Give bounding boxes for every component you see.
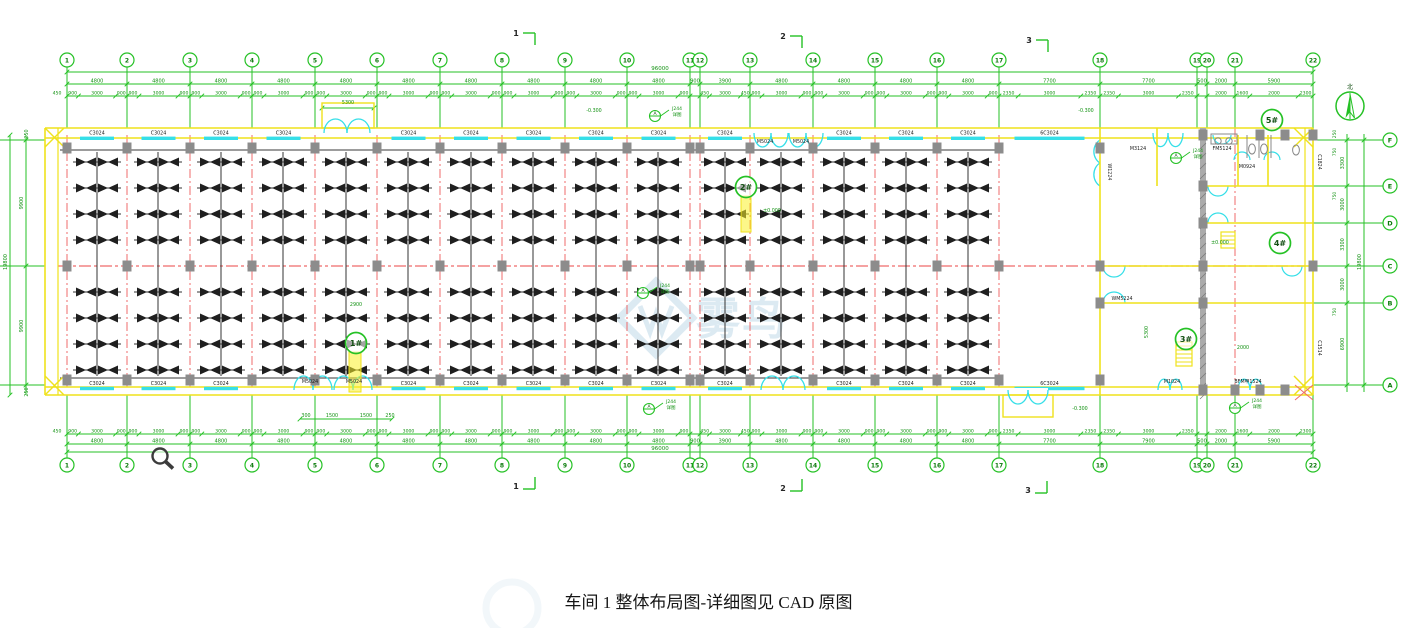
svg-text:BFM甲1524: BFM甲1524 (1234, 379, 1261, 385)
svg-text:750: 750 (1332, 192, 1338, 201)
dimensions-bottom: 9600048009003000900480090030009004800900… (53, 106, 1316, 455)
svg-text:J244: J244 (659, 283, 670, 289)
svg-text:详图: 详图 (661, 288, 670, 295)
svg-text:3000: 3000 (1143, 429, 1155, 435)
svg-text:C3024: C3024 (717, 131, 733, 137)
svg-text:900: 900 (555, 91, 564, 97)
svg-text:4800: 4800 (91, 79, 104, 85)
svg-text:3000: 3000 (719, 429, 731, 435)
svg-text:-0.300: -0.300 (1078, 108, 1093, 114)
svg-text:900: 900 (379, 429, 388, 435)
svg-text:3000: 3000 (838, 91, 850, 97)
svg-text:900: 900 (752, 91, 761, 97)
svg-text:2350: 2350 (1085, 91, 1097, 97)
axis-grid (0, 67, 1313, 458)
svg-text:20: 20 (1203, 57, 1211, 64)
svg-text:14: 14 (809, 57, 817, 64)
svg-text:4800: 4800 (152, 439, 165, 445)
svg-text:7: 7 (438, 57, 442, 64)
svg-text:1#: 1# (350, 339, 363, 348)
svg-text:2#: 2# (740, 183, 753, 192)
svg-text:3000: 3000 (278, 91, 290, 97)
svg-text:16: 16 (933, 462, 941, 469)
svg-text:19800: 19800 (3, 254, 9, 270)
svg-text:16: 16 (933, 57, 941, 64)
svg-text:10: 10 (623, 57, 631, 64)
floorplan-drawing: 雾鸟FEDCBA33003000330030006900198002507507… (0, 0, 1417, 628)
svg-text:900: 900 (504, 429, 513, 435)
svg-text:2350: 2350 (1182, 429, 1194, 435)
svg-text:2900: 2900 (350, 302, 362, 308)
svg-text:450: 450 (700, 429, 709, 435)
svg-text:1600: 1600 (1237, 429, 1249, 435)
svg-text:900: 900 (492, 429, 501, 435)
svg-text:3000: 3000 (153, 429, 165, 435)
svg-text:15: 15 (871, 462, 879, 469)
svg-text:1500: 1500 (360, 413, 372, 419)
svg-text:M5024: M5024 (793, 139, 809, 145)
svg-text:3000: 3000 (1044, 429, 1056, 435)
svg-text:WM5224: WM5224 (1111, 296, 1132, 302)
svg-text:详图: 详图 (673, 111, 682, 118)
svg-text:1: 1 (65, 57, 69, 64)
svg-text:4800: 4800 (652, 79, 665, 85)
svg-text:E: E (1388, 182, 1392, 190)
svg-text:9: 9 (563, 57, 567, 64)
svg-text:900: 900 (876, 429, 885, 435)
svg-text:900: 900 (305, 91, 314, 97)
svg-text:900: 900 (617, 429, 626, 435)
svg-text:900: 900 (191, 429, 200, 435)
svg-text:17: 17 (995, 462, 1003, 469)
svg-text:5#: 5# (1266, 116, 1279, 125)
svg-text:3000: 3000 (962, 429, 974, 435)
svg-text:900: 900 (430, 91, 439, 97)
svg-text:3900: 3900 (719, 439, 732, 445)
svg-text:2000: 2000 (1268, 429, 1280, 435)
svg-text:900: 900 (367, 91, 376, 97)
svg-text:18: 18 (1096, 462, 1104, 469)
svg-text:900: 900 (803, 91, 812, 97)
svg-text:C3024: C3024 (651, 131, 667, 137)
svg-text:5: 5 (313, 462, 317, 469)
svg-text:C3024: C3024 (463, 381, 479, 387)
svg-text:900: 900 (430, 429, 439, 435)
svg-text:21: 21 (1231, 57, 1239, 64)
svg-text:900: 900 (117, 429, 126, 435)
svg-text:900: 900 (191, 91, 200, 97)
svg-text:900: 900 (865, 91, 874, 97)
svg-text:4800: 4800 (838, 439, 851, 445)
svg-text:4800: 4800 (340, 439, 353, 445)
svg-text:250: 250 (24, 129, 30, 138)
svg-text:4800: 4800 (962, 439, 975, 445)
svg-text:2000: 2000 (1215, 79, 1228, 85)
svg-text:4800: 4800 (152, 79, 165, 85)
svg-text:250: 250 (1332, 130, 1338, 139)
svg-text:2000: 2000 (1215, 439, 1228, 445)
svg-text:3000: 3000 (776, 91, 788, 97)
svg-text:20: 20 (1203, 462, 1211, 469)
svg-text:M3124: M3124 (1130, 146, 1146, 152)
svg-text:3000: 3000 (215, 91, 227, 97)
svg-text:900: 900 (379, 91, 388, 97)
svg-text:900: 900 (180, 91, 189, 97)
svg-text:C3024: C3024 (151, 381, 167, 387)
svg-text:FM5124: FM5124 (1212, 146, 1231, 152)
svg-text:4800: 4800 (215, 79, 228, 85)
north-arrow-icon: 北 (1336, 83, 1364, 120)
svg-text:900: 900 (938, 91, 947, 97)
svg-text:C3024: C3024 (401, 381, 417, 387)
svg-text:2000: 2000 (1237, 345, 1249, 351)
svg-text:21: 21 (1231, 462, 1239, 469)
svg-text:2350: 2350 (1003, 91, 1015, 97)
svg-text:3000: 3000 (653, 91, 665, 97)
svg-text:2350: 2350 (1085, 429, 1097, 435)
svg-text:900: 900 (690, 79, 700, 85)
svg-text:18: 18 (1096, 57, 1104, 64)
svg-text:C3024: C3024 (588, 131, 604, 137)
svg-text:450: 450 (53, 91, 62, 97)
svg-text:C3024: C3024 (960, 381, 976, 387)
svg-text:9900: 9900 (19, 320, 25, 333)
svg-text:C3024: C3024 (401, 131, 417, 137)
svg-text:750: 750 (1332, 148, 1338, 157)
machine-rows (73, 152, 992, 376)
svg-text:W1224: W1224 (1106, 164, 1112, 181)
svg-text:900: 900 (566, 429, 575, 435)
svg-text:3000: 3000 (91, 429, 103, 435)
svg-text:-0.300: -0.300 (1072, 406, 1087, 412)
svg-text:900: 900 (68, 429, 77, 435)
svg-text:900: 900 (555, 429, 564, 435)
svg-text:1600: 1600 (1237, 91, 1249, 97)
svg-text:4800: 4800 (340, 79, 353, 85)
svg-text:C3024: C3024 (588, 381, 604, 387)
svg-text:900: 900 (989, 91, 998, 97)
svg-text:C3024: C3024 (463, 131, 479, 137)
svg-text:2350: 2350 (1182, 91, 1194, 97)
svg-text:4800: 4800 (775, 439, 788, 445)
svg-text:1: 1 (65, 462, 69, 469)
svg-text:4800: 4800 (277, 79, 290, 85)
svg-text:3300: 3300 (1340, 157, 1346, 170)
svg-text:900: 900 (989, 429, 998, 435)
svg-text:4800: 4800 (527, 79, 540, 85)
svg-text:4800: 4800 (465, 79, 478, 85)
svg-text:C3024: C3024 (213, 381, 229, 387)
svg-text:13: 13 (746, 57, 754, 64)
svg-text:3: 3 (188, 57, 192, 64)
svg-text:2300: 2300 (1300, 91, 1312, 97)
svg-text:3000: 3000 (153, 91, 165, 97)
svg-text:3: 3 (1025, 486, 1031, 495)
svg-text:3000: 3000 (528, 91, 540, 97)
svg-text:3000: 3000 (653, 429, 665, 435)
svg-text:4800: 4800 (590, 439, 603, 445)
drawing-caption: 车间 1 整体布局图-详细图见 CAD 原图 (0, 588, 1417, 613)
svg-text:4800: 4800 (652, 439, 665, 445)
svg-text:6C3024: 6C3024 (1040, 381, 1059, 387)
svg-text:14: 14 (809, 462, 817, 469)
svg-text:3000: 3000 (91, 91, 103, 97)
svg-text:3000: 3000 (1143, 91, 1155, 97)
svg-text:C3024: C3024 (151, 131, 167, 137)
svg-text:12: 12 (696, 462, 704, 469)
svg-text:F: F (1388, 136, 1392, 144)
svg-text:900: 900 (690, 439, 700, 445)
svg-text:3000: 3000 (838, 429, 850, 435)
svg-text:3000: 3000 (465, 91, 477, 97)
svg-text:900: 900 (865, 429, 874, 435)
svg-text:4#: 4# (1274, 239, 1287, 248)
svg-text:3#: 3# (1180, 335, 1193, 344)
svg-text:J244: J244 (1251, 398, 1262, 404)
svg-text:3000: 3000 (528, 429, 540, 435)
svg-text:C3024: C3024 (276, 131, 292, 137)
svg-text:900: 900 (254, 429, 263, 435)
svg-text:C3024: C3024 (89, 131, 105, 137)
svg-text:900: 900 (814, 429, 823, 435)
svg-text:900: 900 (927, 91, 936, 97)
svg-text:2000: 2000 (1215, 429, 1227, 435)
svg-text:17: 17 (995, 57, 1003, 64)
svg-text:900: 900 (254, 91, 263, 97)
svg-text:900: 900 (242, 91, 251, 97)
svg-text:3000: 3000 (278, 429, 290, 435)
svg-text:详图: 详图 (667, 404, 676, 411)
svg-text:900: 900 (180, 429, 189, 435)
svg-text:C3024: C3024 (836, 131, 852, 137)
svg-text:J244: J244 (671, 106, 682, 112)
svg-text:1500: 1500 (326, 413, 338, 419)
svg-text:8: 8 (500, 57, 504, 64)
svg-text:2: 2 (780, 484, 786, 493)
building-walls (45, 128, 1313, 400)
svg-text:13: 13 (746, 462, 754, 469)
svg-text:2350: 2350 (1103, 91, 1115, 97)
svg-text:250: 250 (385, 413, 394, 419)
svg-text:15: 15 (871, 57, 879, 64)
svg-text:900: 900 (441, 429, 450, 435)
windows: C3024C3024C3024C3024C3024C3024C3024C3024… (80, 131, 1085, 391)
svg-text:北: 北 (1347, 83, 1353, 91)
svg-text:3: 3 (1026, 36, 1032, 45)
svg-text:2350: 2350 (1103, 429, 1115, 435)
svg-text:7700: 7700 (1043, 79, 1056, 85)
svg-text:3000: 3000 (776, 429, 788, 435)
svg-text:详图: 详图 (1253, 403, 1262, 410)
svg-text:500: 500 (1197, 439, 1207, 445)
svg-text:C1824: C1824 (1316, 154, 1322, 170)
svg-text:3000: 3000 (962, 91, 974, 97)
svg-text:900: 900 (242, 429, 251, 435)
svg-text:7700: 7700 (1043, 439, 1056, 445)
green-annotations: -0.300-0.300-0.300±0.000±0.0005300290030… (24, 100, 1249, 419)
svg-text:C3024: C3024 (960, 131, 976, 137)
svg-text:900: 900 (129, 91, 138, 97)
svg-text:900: 900 (629, 91, 638, 97)
svg-text:5300: 5300 (1144, 326, 1150, 338)
svg-text:3000: 3000 (590, 91, 602, 97)
svg-text:6900: 6900 (1340, 338, 1346, 351)
svg-text:4800: 4800 (900, 79, 913, 85)
svg-text:3900: 3900 (719, 79, 732, 85)
svg-text:900: 900 (566, 91, 575, 97)
svg-text:2300: 2300 (1300, 429, 1312, 435)
svg-text:9: 9 (563, 462, 567, 469)
svg-text:750: 750 (1332, 308, 1338, 317)
svg-text:900: 900 (68, 91, 77, 97)
svg-text:4800: 4800 (962, 79, 975, 85)
svg-text:C3024: C3024 (898, 131, 914, 137)
svg-text:900: 900 (367, 429, 376, 435)
svg-text:900: 900 (492, 91, 501, 97)
svg-text:4800: 4800 (900, 439, 913, 445)
svg-text:10: 10 (623, 462, 631, 469)
svg-text:5300: 5300 (342, 100, 354, 106)
svg-text:900: 900 (814, 91, 823, 97)
svg-text:900: 900 (129, 429, 138, 435)
svg-text:C3024: C3024 (717, 381, 733, 387)
svg-text:900: 900 (938, 429, 947, 435)
svg-text:2: 2 (125, 57, 129, 64)
svg-text:C3024: C3024 (526, 381, 542, 387)
svg-text:5900: 5900 (1268, 79, 1281, 85)
svg-text:C3024: C3024 (836, 381, 852, 387)
svg-text:D: D (1387, 219, 1393, 227)
svg-text:3000: 3000 (1340, 198, 1346, 211)
svg-text:4800: 4800 (91, 439, 104, 445)
svg-text:900: 900 (927, 429, 936, 435)
svg-text:M5024: M5024 (346, 379, 362, 385)
svg-text:4: 4 (250, 462, 254, 469)
svg-text:M0924: M0924 (1239, 164, 1255, 170)
svg-text:2: 2 (780, 32, 786, 41)
svg-text:M5024: M5024 (302, 379, 318, 385)
svg-text:M5024: M5024 (757, 139, 773, 145)
svg-text:22: 22 (1309, 462, 1317, 469)
dimensions-top: 9600048009003000900480090030009004800900… (53, 66, 1316, 98)
svg-text:3000: 3000 (215, 429, 227, 435)
svg-text:M1024: M1024 (1164, 379, 1180, 385)
svg-text:3: 3 (188, 462, 192, 469)
svg-text:3000: 3000 (403, 91, 415, 97)
svg-text:2000: 2000 (1215, 91, 1227, 97)
svg-text:450: 450 (53, 429, 62, 435)
svg-text:900: 900 (305, 429, 314, 435)
svg-text:7700: 7700 (1142, 79, 1155, 85)
svg-text:4800: 4800 (215, 439, 228, 445)
svg-text:3000: 3000 (590, 429, 602, 435)
svg-text:900: 900 (117, 91, 126, 97)
svg-text:C3024: C3024 (898, 381, 914, 387)
svg-text:96000: 96000 (651, 66, 669, 72)
svg-text:4800: 4800 (277, 439, 290, 445)
svg-text:22: 22 (1309, 57, 1317, 64)
svg-text:250: 250 (24, 387, 30, 396)
svg-text:详图: 详图 (1194, 153, 1203, 160)
svg-text:C3024: C3024 (651, 381, 667, 387)
svg-text:±0.000: ±0.000 (1211, 240, 1229, 246)
svg-text:1: 1 (513, 29, 519, 38)
svg-text:19800: 19800 (1357, 254, 1363, 270)
svg-text:900: 900 (316, 91, 325, 97)
svg-text:2: 2 (125, 462, 129, 469)
svg-text:3300: 3300 (1340, 238, 1346, 251)
svg-text:4800: 4800 (527, 439, 540, 445)
svg-text:±0.000: ±0.000 (763, 208, 781, 214)
svg-text:7: 7 (438, 462, 442, 469)
svg-text:4800: 4800 (465, 439, 478, 445)
svg-text:900: 900 (316, 429, 325, 435)
svg-text:4: 4 (250, 57, 254, 64)
svg-text:3000: 3000 (1340, 278, 1346, 291)
svg-text:900: 900 (504, 91, 513, 97)
svg-text:4800: 4800 (838, 79, 851, 85)
svg-text:6: 6 (375, 462, 379, 469)
svg-text:3000: 3000 (340, 429, 352, 435)
svg-text:6C3024: 6C3024 (1040, 131, 1059, 137)
svg-text:3000: 3000 (900, 91, 912, 97)
svg-text:J244: J244 (665, 399, 676, 405)
svg-text:900: 900 (752, 429, 761, 435)
svg-text:3000: 3000 (1044, 91, 1056, 97)
svg-text:900: 900 (617, 91, 626, 97)
svg-text:4800: 4800 (402, 79, 415, 85)
cad-viewport[interactable]: 雾鸟FEDCBA33003000330030006900198002507507… (0, 0, 1417, 628)
svg-text:C1514: C1514 (1316, 340, 1322, 356)
svg-text:900: 900 (680, 429, 689, 435)
svg-text:900: 900 (629, 429, 638, 435)
svg-text:C3024: C3024 (89, 381, 105, 387)
svg-text:900: 900 (680, 91, 689, 97)
svg-text:-0.300: -0.300 (586, 108, 601, 114)
svg-text:8: 8 (500, 462, 504, 469)
svg-text:5: 5 (313, 57, 317, 64)
svg-text:4800: 4800 (590, 79, 603, 85)
svg-text:96000: 96000 (651, 446, 669, 452)
svg-text:C: C (1388, 262, 1393, 270)
svg-text:500: 500 (1197, 79, 1207, 85)
svg-text:900: 900 (876, 91, 885, 97)
svg-text:4800: 4800 (402, 439, 415, 445)
svg-text:9900: 9900 (19, 197, 25, 210)
svg-text:4800: 4800 (775, 79, 788, 85)
svg-text:3000: 3000 (403, 429, 415, 435)
svg-text:C3024: C3024 (526, 131, 542, 137)
svg-text:12: 12 (696, 57, 704, 64)
svg-text:3000: 3000 (340, 91, 352, 97)
svg-text:3000: 3000 (719, 91, 731, 97)
svg-text:B: B (1388, 299, 1393, 307)
svg-text:C3024: C3024 (213, 131, 229, 137)
svg-text:450: 450 (741, 429, 750, 435)
svg-text:1: 1 (513, 482, 519, 491)
svg-text:450: 450 (700, 91, 709, 97)
svg-text:450: 450 (741, 91, 750, 97)
svg-text:2350: 2350 (1003, 429, 1015, 435)
svg-text:7900: 7900 (1142, 439, 1155, 445)
svg-text:3000: 3000 (465, 429, 477, 435)
svg-text:6: 6 (375, 57, 379, 64)
svg-text:5900: 5900 (1268, 439, 1281, 445)
svg-text:900: 900 (441, 91, 450, 97)
svg-text:J244: J244 (1192, 148, 1203, 154)
svg-text:300: 300 (301, 413, 310, 419)
svg-text:900: 900 (803, 429, 812, 435)
